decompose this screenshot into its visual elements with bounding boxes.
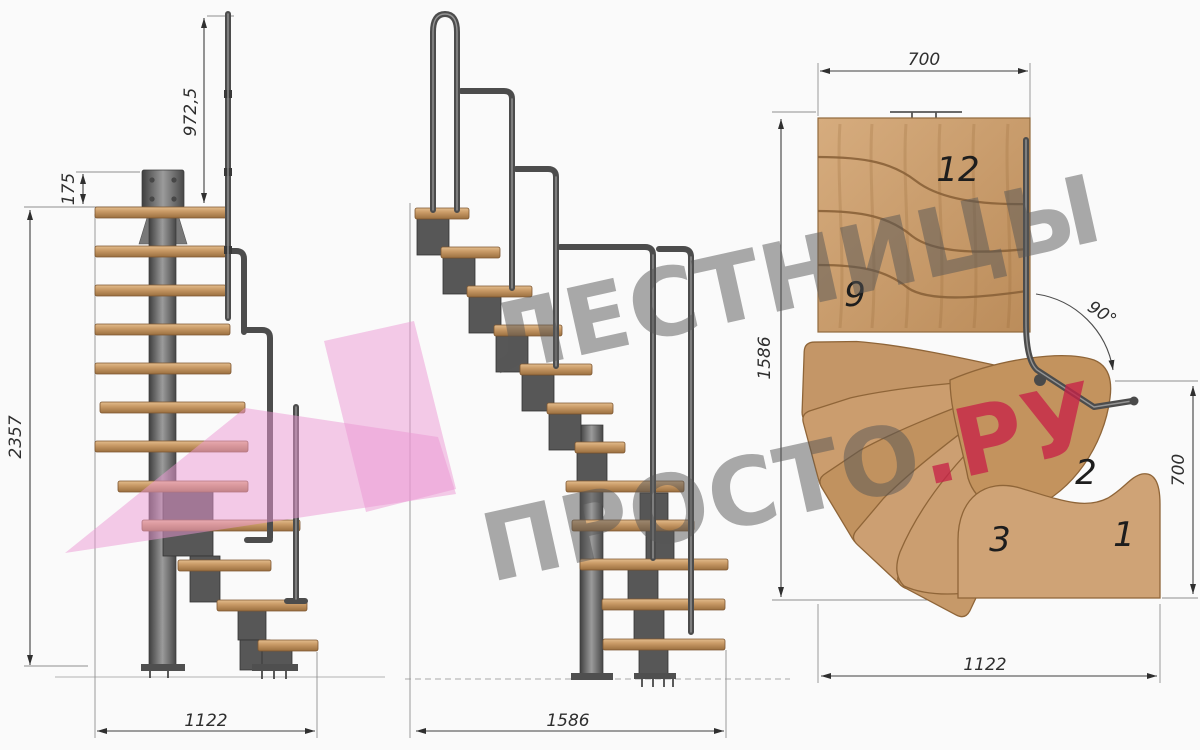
anchor-bolts [262,671,286,679]
base-plate [141,664,185,671]
base-plate [634,673,676,679]
dim-label-plate-offset: 175 [59,173,79,205]
step-number-1: 1 [1113,515,1135,555]
dim-label-turn-angle: 90° [1084,297,1120,330]
dim-label-total-height: 2357 [6,415,26,458]
tread [547,403,613,414]
bolt-hole [149,177,154,182]
tread [415,208,469,219]
wall-plate [142,170,184,208]
tread [95,285,226,296]
anchor-bolts [642,679,673,687]
staircase-technical-drawing: 972,5 175 2357 1122 [0,0,1200,750]
tread [258,640,318,651]
bolt-hole [149,196,154,201]
dim-label-plan-width: 1122 [963,655,1006,675]
tread [95,207,228,218]
tread [95,363,231,374]
dim-label-entry-depth: 700 [1169,454,1189,486]
tread [602,599,725,610]
side-view: 1586 [405,14,790,738]
tread [95,324,230,335]
tread [100,402,245,413]
front-view: 972,5 175 2357 1122 [6,14,385,738]
dim-label-front-width: 1122 [184,711,227,731]
base-plate [252,664,298,671]
handrail-loop [433,14,457,210]
step-module [238,610,266,640]
tread [603,639,725,650]
bolt-hole [171,196,176,201]
tread [441,247,500,258]
dim-label-landing-width: 700 [908,50,940,70]
base-plate [571,673,613,680]
drawing-canvas: 972,5 175 2357 1122 [0,0,1200,750]
tread [575,442,625,453]
step-module [628,570,658,602]
handrail [232,251,244,332]
dim-label-rail-height: 972,5 [181,88,201,137]
center-column [149,208,176,669]
step-module [634,608,664,642]
tread [178,560,271,571]
rail-end-knob [1130,397,1139,406]
step-number-3: 3 [989,520,1011,560]
watermark-logo [65,321,456,553]
dim-label-plan-depth: 1586 [755,336,775,379]
tread [95,246,226,257]
dim-label-side-width: 1586 [546,711,589,731]
plan-view: 700 1586 90° 700 1122 12 9 3 2 1 [755,50,1198,683]
bolt-hole [171,177,176,182]
